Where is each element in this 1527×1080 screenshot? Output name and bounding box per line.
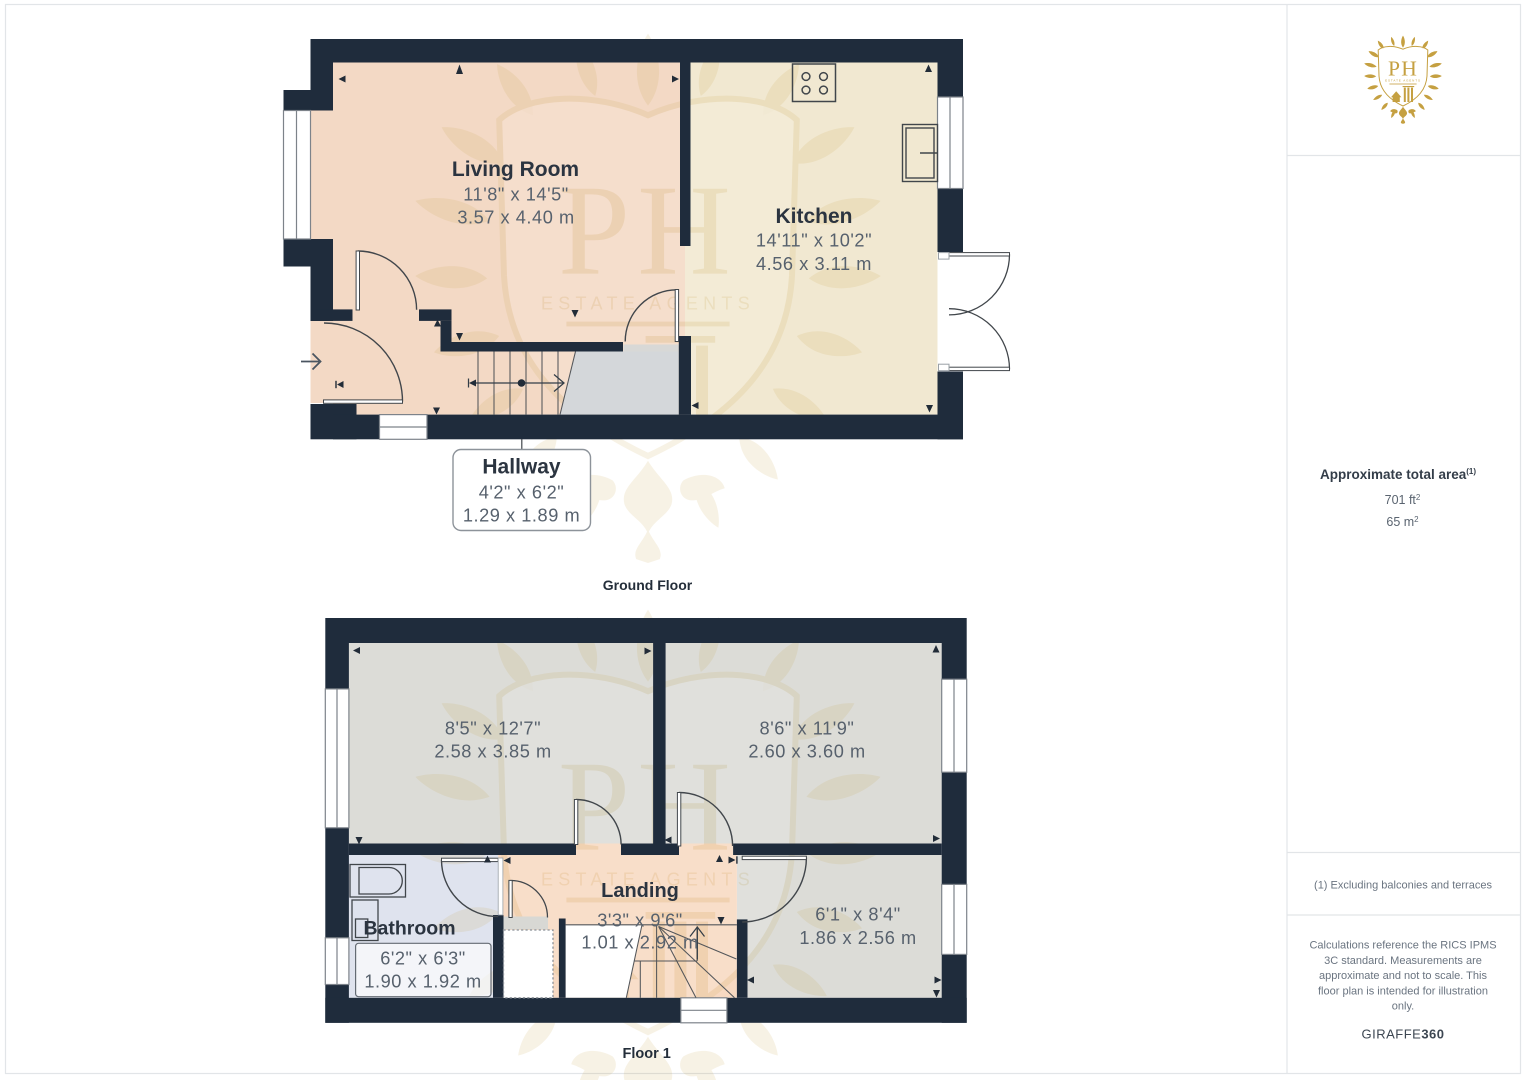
svg-text:4.56 x 3.11 m: 4.56 x 3.11 m [756, 254, 872, 274]
svg-text:8'5" x 12'7": 8'5" x 12'7" [445, 719, 541, 739]
svg-text:Calculations reference the RIC: Calculations reference the RICS IPMS [1309, 940, 1496, 952]
svg-text:approximate and not to scale.: approximate and not to scale. This [1319, 970, 1487, 982]
svg-text:4'2" x 6'2": 4'2" x 6'2" [479, 483, 565, 503]
svg-text:3C standard. Measurements are: 3C standard. Measurements are [1324, 955, 1482, 967]
svg-text:3.57 x 4.40 m: 3.57 x 4.40 m [457, 208, 574, 228]
svg-text:Landing: Landing [601, 880, 679, 902]
svg-text:1.01 x 2.92 m: 1.01 x 2.92 m [581, 933, 698, 953]
svg-text:Floor 1: Floor 1 [623, 1046, 671, 1062]
svg-text:2.58 x 3.85 m: 2.58 x 3.85 m [434, 742, 551, 762]
svg-text:Kitchen: Kitchen [775, 205, 852, 228]
svg-text:8'6" x 11'9": 8'6" x 11'9" [760, 719, 855, 739]
svg-text:Ground Floor: Ground Floor [603, 577, 693, 593]
svg-text:1.29 x 1.89 m: 1.29 x 1.89 m [463, 506, 580, 526]
svg-text:Approximate total area(1): Approximate total area(1) [1320, 467, 1476, 482]
svg-text:14'11" x 10'2": 14'11" x 10'2" [756, 230, 872, 250]
svg-text:6'1" x 8'4": 6'1" x 8'4" [815, 905, 901, 925]
svg-text:Hallway: Hallway [482, 456, 561, 479]
svg-text:6'2" x 6'3": 6'2" x 6'3" [380, 949, 466, 969]
svg-text:1.90 x 1.92 m: 1.90 x 1.92 m [364, 972, 481, 992]
svg-text:only.: only. [1392, 1001, 1414, 1013]
svg-text:GIRAFFE360: GIRAFFE360 [1361, 1027, 1444, 1042]
svg-text:1.86 x 2.56 m: 1.86 x 2.56 m [799, 928, 916, 948]
svg-text:Living Room: Living Room [452, 158, 579, 181]
svg-text:11'8" x 14'5": 11'8" x 14'5" [463, 185, 569, 205]
svg-text:floor plan is intended for ill: floor plan is intended for illustration [1318, 985, 1488, 997]
svg-text:Bathroom: Bathroom [363, 918, 455, 940]
svg-text:701 ft2: 701 ft2 [1385, 493, 1421, 507]
svg-text:3'3" x 9'6": 3'3" x 9'6" [597, 911, 683, 931]
svg-text:2.60 x 3.60 m: 2.60 x 3.60 m [748, 742, 865, 762]
svg-text:(1) Excluding balconies and te: (1) Excluding balconies and terraces [1314, 880, 1492, 892]
